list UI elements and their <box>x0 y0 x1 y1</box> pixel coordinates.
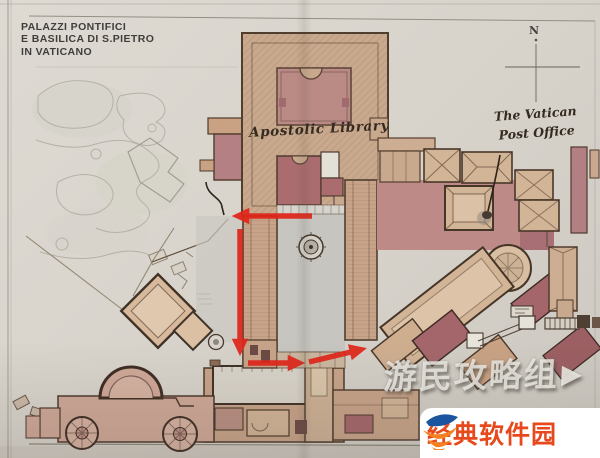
compass-north-label: N <box>529 24 540 37</box>
map-title-line3: IN VATICANO <box>21 46 154 58</box>
east-corridor <box>345 180 377 340</box>
vatican-map-screenshot: PALAZZI PONTIFICI E BASILICA DI S.PIETRO… <box>0 0 600 458</box>
site-badge-watermark: 经典软件园 <box>420 408 600 458</box>
small-buildings-west <box>200 118 247 215</box>
map-title-line2: E BASILICA DI S.PIETRO <box>21 33 154 45</box>
map-title-line1: PALAZZI PONTIFICI <box>21 21 154 33</box>
guide-group-watermark: 游民攻略组▶ <box>383 347 585 398</box>
guide-group-watermark-text: 游民攻略组 <box>383 356 560 396</box>
post-office-label: The Vatican Post Office <box>483 100 589 145</box>
map-title: PALAZZI PONTIFICI E BASILICA DI S.PIETRO… <box>21 21 154 58</box>
site-badge-logo-icon <box>420 408 460 450</box>
watermark-arrow-icon: ▶ <box>561 360 584 388</box>
compass-icon <box>505 39 580 102</box>
